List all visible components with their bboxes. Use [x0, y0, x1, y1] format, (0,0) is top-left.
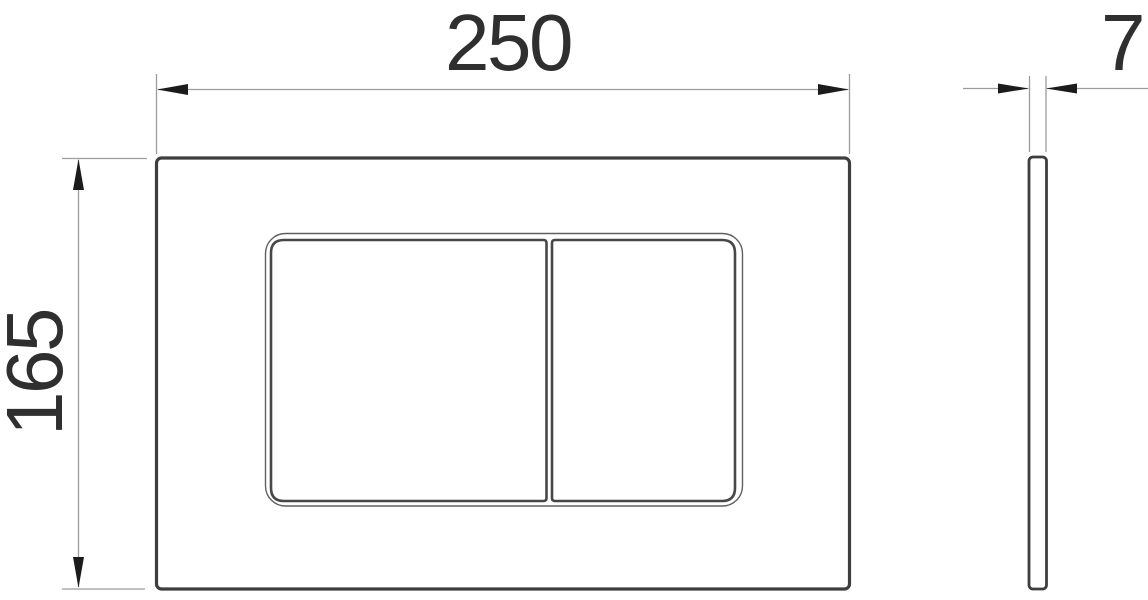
width-dimension: 250	[157, 0, 850, 154]
technical-drawing-canvas: 250 165 7	[0, 0, 1148, 600]
flush-plate-dimension-drawing: 250 165 7	[0, 0, 1148, 600]
thickness-dimension-label: 7	[1101, 0, 1143, 87]
arrowhead-right-icon	[818, 84, 849, 95]
thickness-dimension: 7	[963, 0, 1148, 152]
arrowhead-left-icon	[157, 84, 188, 95]
arrowhead-up-icon	[73, 159, 84, 190]
arrowhead-right-icon	[998, 84, 1029, 94]
height-dimension-label: 165	[0, 310, 79, 436]
side-profile-outline	[1029, 157, 1047, 589]
width-dimension-label: 250	[445, 0, 571, 87]
arrowhead-left-icon	[1046, 84, 1077, 94]
height-dimension: 165	[0, 159, 147, 590]
arrowhead-down-icon	[73, 557, 84, 588]
flush-plate-front-view	[157, 158, 850, 589]
plate-outline	[157, 158, 850, 589]
flush-plate-side-view	[1029, 157, 1047, 589]
